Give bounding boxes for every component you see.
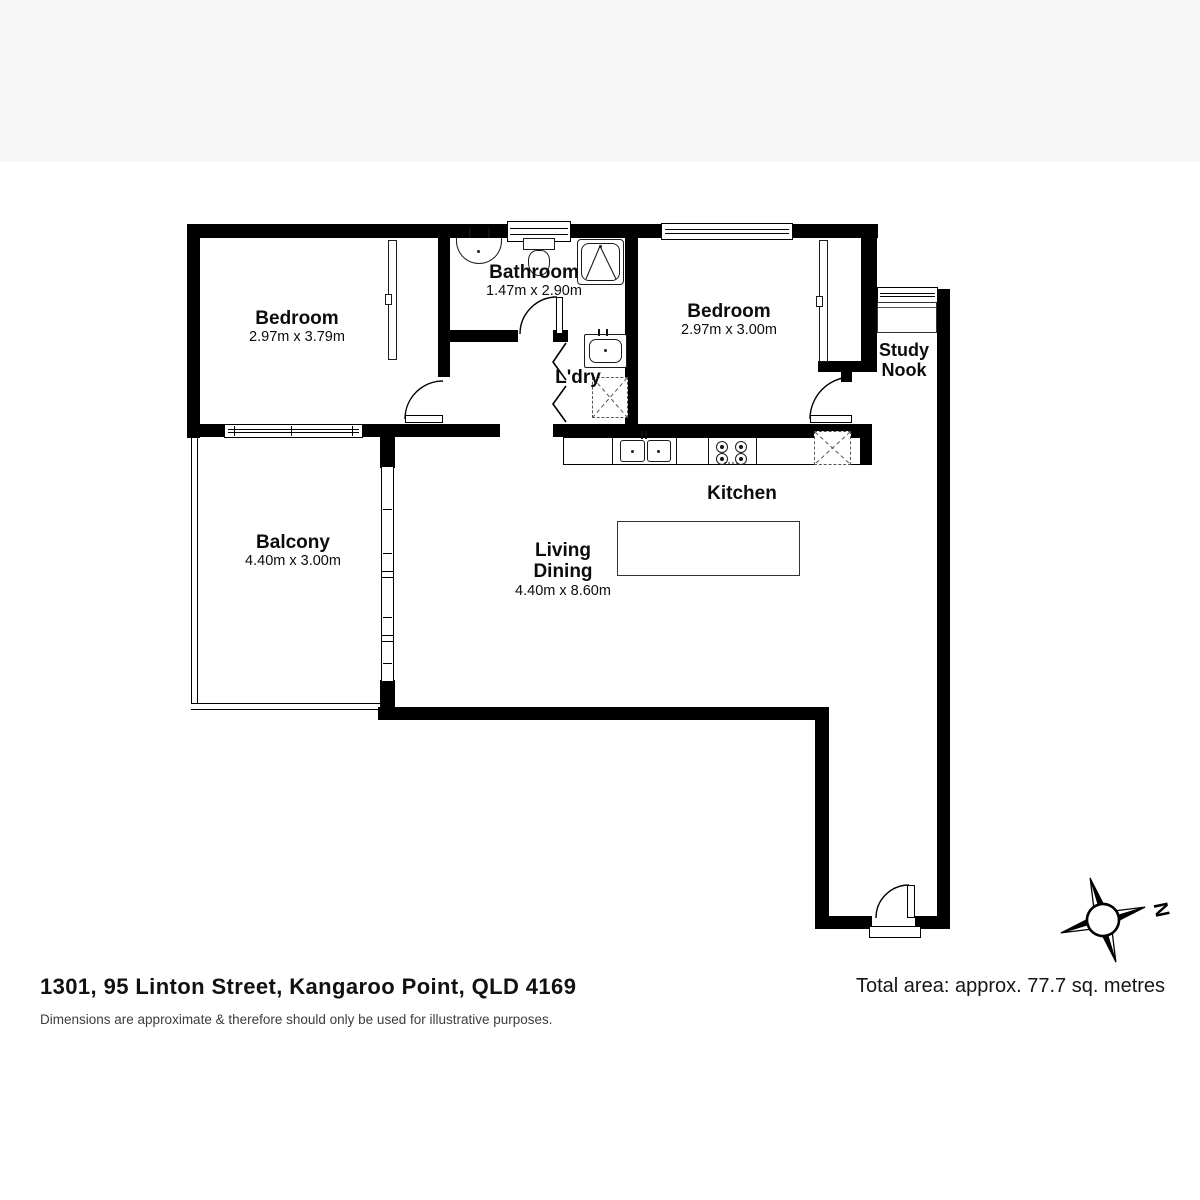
bathroom-door (556, 297, 563, 334)
desk-edge (878, 307, 936, 308)
room-name: Balcony (245, 532, 341, 553)
wall (815, 916, 872, 929)
room-name: Dining (515, 561, 611, 582)
wall (841, 372, 852, 382)
room-name: Bathroom (486, 262, 582, 283)
shower-rose (599, 245, 602, 248)
study-nook-window (877, 287, 938, 303)
sink-drain (631, 450, 634, 453)
compass-north-label: N (1149, 900, 1174, 919)
room-dims: 1.47m x 2.90m (486, 283, 582, 299)
room-name: Study (879, 340, 929, 360)
room-dims: 4.40m x 3.00m (245, 553, 341, 569)
bedroom2-door-swing (810, 377, 852, 419)
sink-drain (657, 450, 660, 453)
balcony-railing (191, 703, 381, 710)
tap-icon (598, 329, 600, 336)
island-bench (617, 521, 800, 576)
entry-door-swing (876, 885, 909, 918)
room-name: Kitchen (707, 483, 777, 504)
wall (438, 224, 450, 377)
room-dims: 2.97m x 3.00m (681, 322, 777, 338)
tap-icon (645, 431, 647, 439)
bench-divider (756, 438, 757, 464)
bench-divider (708, 438, 709, 464)
room-name: Bedroom (249, 308, 345, 329)
wall (860, 424, 872, 465)
room-label-bathroom: Bathroom 1.47m x 2.90m (486, 262, 582, 300)
property-address: 1301, 95 Linton Street, Kangaroo Point, … (40, 974, 576, 1000)
tap-icon (469, 228, 471, 238)
bedroom1-door-swing (405, 381, 443, 419)
room-name: Nook (879, 360, 929, 380)
sliding-door (381, 466, 394, 682)
room-label-balcony: Balcony 4.40m x 3.00m (245, 532, 341, 570)
tap-icon (606, 329, 608, 336)
tap-icon (488, 228, 490, 238)
toilet-tank-icon (523, 238, 555, 250)
room-label-study-nook: Study Nook (879, 340, 929, 381)
bench-divider (612, 438, 613, 464)
wall (378, 707, 828, 720)
entry-door-sill (869, 926, 921, 938)
bathroom-door-swing (520, 297, 557, 334)
bedroom2-door (810, 415, 852, 423)
floor-plan-page: N Bedroom 2.97m x 3.79m Bathroom 1.47m x… (0, 0, 1200, 1200)
bedroom1-door (405, 415, 443, 423)
room-label-laundry: L'dry (555, 367, 601, 388)
tub-drain (604, 349, 607, 352)
room-label-bedroom1: Bedroom 2.97m x 3.79m (249, 308, 345, 346)
room-label-living-dining: Living Dining 4.40m x 8.60m (515, 540, 611, 599)
wall (187, 424, 225, 437)
compass-rose-icon: N (1048, 865, 1173, 975)
wall (438, 330, 518, 342)
room-name: Bedroom (681, 301, 777, 322)
bedroom1-window (224, 424, 363, 438)
refrigerator-icon (814, 431, 851, 465)
room-label-kitchen: Kitchen (707, 483, 777, 504)
entry-door (907, 885, 915, 918)
wall (380, 680, 395, 720)
wall (937, 289, 950, 929)
wall (380, 424, 395, 468)
shower-tray (581, 243, 620, 281)
room-name: Living (515, 540, 611, 561)
bifold-door-icon (553, 386, 566, 422)
room-name: L'dry (555, 367, 601, 388)
bedroom2-window (661, 223, 793, 240)
wall (815, 707, 829, 929)
disclaimer-text: Dimensions are approximate & therefore s… (40, 1012, 553, 1027)
wall (861, 224, 877, 372)
tap-icon (641, 431, 643, 439)
wardrobe-handle (385, 294, 392, 305)
bench-divider (676, 438, 677, 464)
room-dims: 2.97m x 3.79m (249, 329, 345, 345)
total-area-text: Total area: approx. 77.7 sq. metres (856, 975, 1165, 998)
wall (187, 224, 200, 438)
basin-drain (477, 250, 480, 253)
room-label-bedroom2: Bedroom 2.97m x 3.00m (681, 301, 777, 339)
top-band (0, 0, 1200, 162)
room-dims: 4.40m x 8.60m (515, 583, 611, 599)
balcony-railing (191, 437, 198, 710)
wardrobe-handle (816, 296, 823, 307)
